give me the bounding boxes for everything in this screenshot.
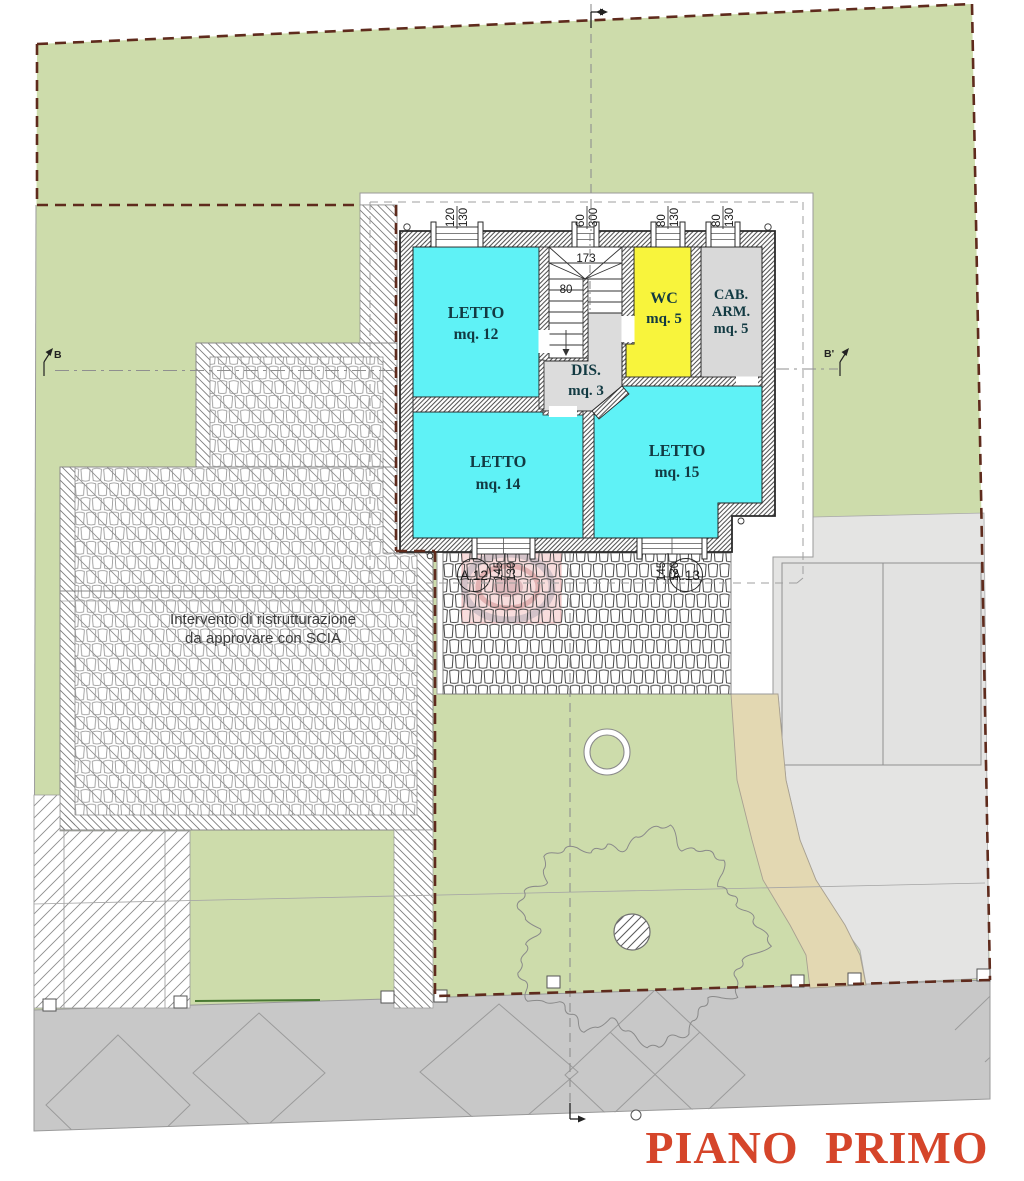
svg-text:300: 300 xyxy=(588,208,600,227)
svg-text:80: 80 xyxy=(711,214,723,227)
svg-text:A.13: A.13 xyxy=(672,568,700,583)
svg-text:B': B' xyxy=(824,348,834,360)
svg-text:B: B xyxy=(54,349,62,361)
svg-text:mq. 3: mq. 3 xyxy=(568,383,604,399)
svg-text:mq. 14: mq. 14 xyxy=(476,476,521,493)
svg-text:Intervento di ristrutturazione: Intervento di ristrutturazione xyxy=(170,611,356,628)
svg-text:130: 130 xyxy=(458,208,470,227)
svg-text:mq. 5: mq. 5 xyxy=(646,311,682,327)
svg-text:80: 80 xyxy=(656,214,668,227)
svg-text:mq. 15: mq. 15 xyxy=(655,464,700,481)
svg-text:LETTO: LETTO xyxy=(448,303,505,322)
svg-text:A.12: A.12 xyxy=(460,568,488,583)
svg-text:60: 60 xyxy=(575,214,587,227)
svg-text:mq. 12: mq. 12 xyxy=(454,326,499,343)
svg-text:ARM.: ARM. xyxy=(712,304,750,320)
svg-text:173: 173 xyxy=(576,253,595,265)
svg-text:130: 130 xyxy=(506,562,518,581)
svg-text:130: 130 xyxy=(669,208,681,227)
svg-text:PIANO PRIMO: PIANO PRIMO xyxy=(645,1122,988,1173)
svg-text:145: 145 xyxy=(493,562,505,581)
svg-text:130: 130 xyxy=(724,208,736,227)
svg-text:145: 145 xyxy=(656,562,668,581)
svg-text:LETTO: LETTO xyxy=(470,452,527,471)
svg-text:mq. 5: mq. 5 xyxy=(714,321,749,337)
svg-text:LETTO: LETTO xyxy=(649,441,706,460)
svg-text:CAB.: CAB. xyxy=(714,287,748,303)
svg-text:WC: WC xyxy=(650,290,678,307)
svg-text:120: 120 xyxy=(445,208,457,227)
svg-text:80: 80 xyxy=(560,284,573,296)
svg-text:da approvare con SCIA: da approvare con SCIA xyxy=(185,630,341,647)
svg-text:DIS.: DIS. xyxy=(571,362,601,379)
